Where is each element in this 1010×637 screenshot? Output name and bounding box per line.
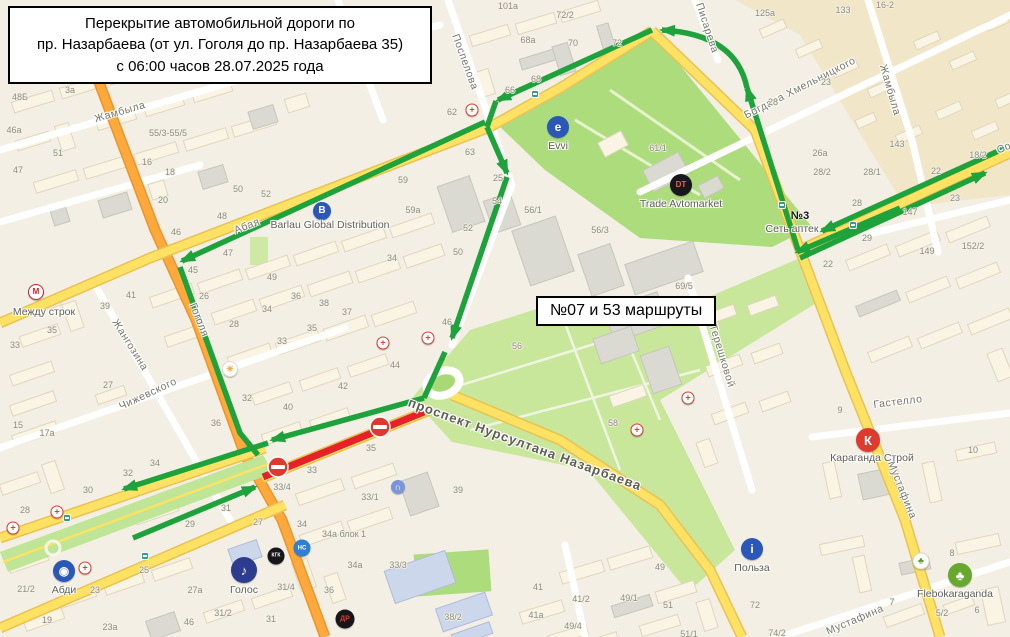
base-map <box>0 0 1010 637</box>
no-entry-icon <box>370 417 390 437</box>
route-numbers-box: №07 и 53 маршруты <box>536 296 716 326</box>
no-entry-icon <box>268 457 288 477</box>
closure-title-box: Перекрытие автомобильной дороги по пр. Н… <box>8 6 432 84</box>
map-canvas[interactable]: ЖамбылаАбаяПоспеловаГоголяЖангозинаЧижев… <box>0 0 1010 637</box>
